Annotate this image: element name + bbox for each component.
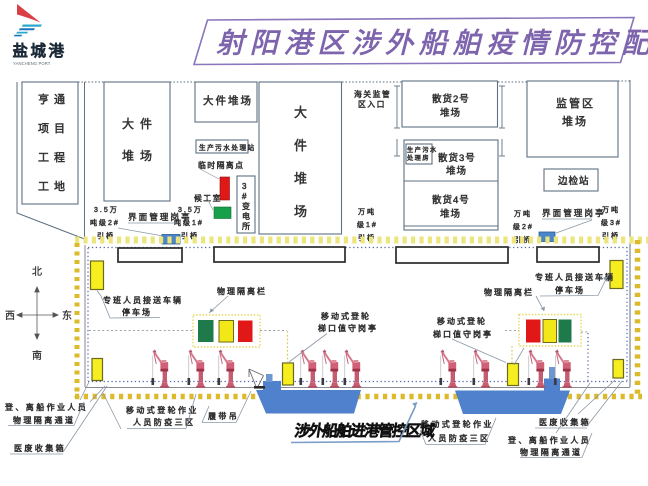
svg-text:界面管理岗亭: 界面管理岗亭 — [128, 211, 192, 222]
svg-text:散货2号: 散货2号 — [432, 93, 470, 105]
svg-text:物理隔离通道: 物理隔离通道 — [13, 415, 75, 425]
svg-text:移动式登轮: 移动式登轮 — [321, 311, 371, 321]
svg-text:候工室: 候工室 — [194, 193, 222, 203]
svg-text:堆场: 堆场 — [122, 149, 158, 163]
svg-text:北: 北 — [32, 266, 42, 278]
svg-text:级2#: 级2# — [513, 222, 534, 231]
svg-text:3: 3 — [242, 182, 248, 191]
svg-text:工程: 工程 — [38, 151, 70, 164]
svg-text:物理隔离栏: 物理隔离栏 — [484, 287, 534, 297]
svg-text:堆场: 堆场 — [562, 114, 588, 128]
svg-text:涉外船舶进港管控区域: 涉外船舶进港管控区域 — [293, 422, 435, 440]
svg-text:区入口: 区入口 — [358, 100, 386, 109]
svg-text:海关监管: 海关监管 — [354, 89, 391, 99]
svg-text:人员防疫三区: 人员防疫三区 — [428, 433, 490, 443]
svg-text:停车场: 停车场 — [555, 285, 585, 295]
svg-text:#: # — [242, 192, 248, 201]
svg-text:梯口值守岗亭: 梯口值守岗亭 — [433, 329, 493, 339]
svg-text:边检站: 边检站 — [558, 175, 590, 187]
svg-text:射阳港区涉外船舶疫情防控配置图: 射阳港区涉外船舶疫情防控配置图 — [214, 28, 648, 60]
svg-text:级1#: 级1# — [357, 220, 378, 229]
svg-text:级3#: 级3# — [601, 218, 622, 227]
svg-text:物理隔离栏: 物理隔离栏 — [217, 286, 267, 296]
svg-text:处理房: 处理房 — [407, 154, 430, 162]
svg-text:生产污水处理站: 生产污水处理站 — [199, 143, 256, 152]
svg-text:堆场: 堆场 — [440, 108, 461, 119]
svg-text:人员防疫三区: 人员防疫三区 — [133, 417, 195, 427]
svg-text:医废收集箱: 医废收集箱 — [539, 417, 591, 427]
svg-text:工地: 工地 — [38, 180, 70, 193]
svg-text:移动式登轮作业: 移动式登轮作业 — [126, 405, 199, 415]
svg-text:项目: 项目 — [38, 122, 70, 135]
svg-text:梯口值守岗亭: 梯口值守岗亭 — [318, 323, 378, 333]
svg-text:堆场: 堆场 — [440, 209, 461, 220]
svg-text:万吨: 万吨 — [514, 209, 532, 218]
svg-text:YANCHENG PORT: YANCHENG PORT — [13, 61, 51, 66]
svg-text:散货3号: 散货3号 — [438, 152, 476, 164]
svg-text:专班人员接送车辆: 专班人员接送车辆 — [103, 295, 183, 305]
svg-text:亨通: 亨通 — [38, 92, 70, 106]
svg-text:散货4号: 散货4号 — [432, 194, 470, 206]
svg-text:监管区: 监管区 — [556, 96, 595, 110]
svg-text:界面管理岗亭: 界面管理岗亭 — [542, 207, 606, 218]
svg-text:大件堆场: 大件堆场 — [203, 94, 253, 107]
svg-text:南: 南 — [32, 349, 42, 362]
svg-text:登、离船作业人员: 登、离船作业人员 — [508, 435, 591, 445]
svg-text:登、离船作业人员: 登、离船作业人员 — [5, 402, 88, 412]
svg-text:吨级2#: 吨级2# — [90, 218, 120, 227]
svg-text:万吨: 万吨 — [358, 207, 376, 216]
svg-text:盐城港: 盐城港 — [13, 42, 67, 60]
svg-text:堆: 堆 — [294, 171, 309, 186]
svg-text:生产污水: 生产污水 — [407, 146, 438, 154]
svg-text:东: 东 — [62, 309, 72, 322]
svg-text:移动式登轮: 移动式登轮 — [437, 316, 487, 326]
svg-text:3.5万: 3.5万 — [94, 206, 119, 214]
svg-text:履带吊: 履带吊 — [208, 412, 239, 421]
svg-text:大件: 大件 — [122, 117, 158, 131]
svg-text:西: 西 — [5, 311, 15, 322]
svg-text:大: 大 — [294, 105, 309, 120]
svg-text:物理隔离通道: 物理隔离通道 — [520, 447, 582, 457]
svg-text:场: 场 — [294, 204, 309, 219]
svg-text:电: 电 — [242, 211, 252, 221]
svg-text:堆场: 堆场 — [446, 166, 467, 177]
svg-text:件: 件 — [294, 138, 309, 153]
svg-text:停车场: 停车场 — [122, 307, 152, 317]
svg-text:临时隔离点: 临时隔离点 — [198, 160, 244, 170]
svg-text:医废收集箱: 医废收集箱 — [14, 443, 66, 453]
svg-text:所: 所 — [242, 221, 252, 231]
svg-text:变: 变 — [242, 201, 252, 211]
svg-text:专班人员接送车辆: 专班人员接送车辆 — [535, 272, 615, 282]
